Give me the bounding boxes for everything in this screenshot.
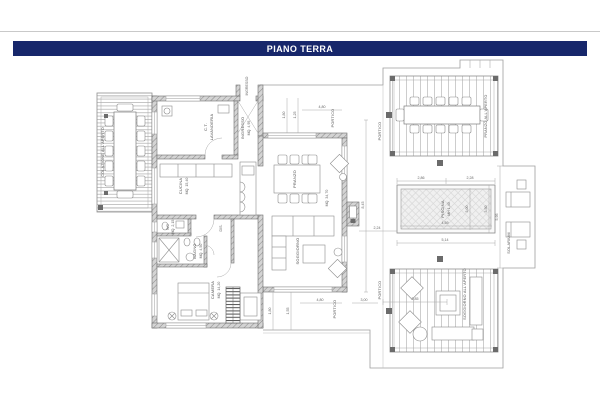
- label-pranzo-aperto: PRANZO ALL'APERTO: [484, 94, 488, 137]
- label-piscina-depth: MH 1,40: [447, 202, 451, 216]
- label-soggiorno: SOGGIORNO: [295, 238, 300, 265]
- label-wc: WC: [166, 224, 170, 230]
- dim-480-bottom: 4,80: [317, 298, 324, 302]
- dim-350: 3,50: [484, 206, 488, 213]
- dim-228: 2,28: [467, 176, 474, 180]
- label-portico-bottom-outer: PORTICO: [378, 281, 382, 300]
- label-ct: C.T.: [203, 123, 208, 131]
- pergola-pranzo: PRANZO ALL'APERTO: [386, 76, 498, 156]
- label-ingresso-mq: MQ. 4,95: [247, 121, 251, 136]
- label-piscina: PISCINA: [440, 200, 445, 218]
- label-portico-top-outer: PORTICO: [378, 122, 382, 141]
- label-sala-mq: MQ. 34,70: [325, 190, 329, 207]
- dim-595: 5,95: [495, 214, 499, 221]
- label-bagno: BAGNO: [192, 243, 197, 258]
- dim-300-pool: 3,00: [465, 206, 469, 213]
- dim-125-top: 1,25: [293, 112, 297, 119]
- label-dis: DIS.: [219, 225, 223, 232]
- drawing-sheet: PIANO TERRA: [0, 0, 600, 400]
- floor-plan: COLAZIONE ALL'APERTO: [0, 0, 600, 400]
- label-camera-mq: MQ. 14,20: [217, 282, 221, 299]
- label-cucina-mq: MQ. 15,40: [185, 178, 189, 195]
- dim-514: 5,14: [442, 238, 449, 242]
- label-portico-top-inner: PORTICO: [331, 109, 335, 128]
- label-solarium: SOLARIUM: [507, 232, 511, 253]
- dim-180-top: 1,80: [282, 112, 286, 119]
- fireplace: [347, 202, 359, 226]
- outdoor-table: [114, 112, 136, 190]
- dim-845: 8,45: [361, 202, 365, 209]
- label-pranzo: PRANZO: [292, 170, 297, 188]
- outdoor-dining-table: [404, 106, 480, 124]
- label-soggiorno-aperto: SOGGIORNO ALL'APERTO: [463, 268, 467, 320]
- solarium: SOLARIUM: [506, 180, 530, 254]
- label-camera: CAMERA: [210, 281, 215, 299]
- living-furniture: [272, 216, 347, 278]
- dim-480-top: 4,80: [319, 105, 326, 109]
- label-ingresso-door: INGRESSO: [245, 76, 249, 95]
- dim-285-pergola: 2,85: [412, 297, 419, 301]
- label-lavanderia: LAVANDERIA: [209, 113, 214, 140]
- label-portico-bottom-strip: PORTICO: [333, 300, 337, 319]
- kitchen-fixtures: [160, 162, 256, 215]
- pergola-soggiorno: SOGGIORNO ALL'APERTO: [386, 268, 498, 352]
- staircase: [226, 287, 240, 323]
- dim-180-bottom: 1,80: [268, 308, 272, 315]
- dim-459: 4,59: [442, 221, 449, 225]
- dim-300-bottom: 3,00: [361, 298, 368, 302]
- label-bagno-mq: MQ. 4,50: [199, 244, 203, 259]
- pergola-colazione: COLAZIONE ALL'APERTO: [97, 93, 152, 212]
- label-ingresso: INGRESSO: [240, 117, 245, 140]
- dim-286: 2,86: [418, 176, 425, 180]
- label-cucina: CUCINA: [178, 178, 183, 195]
- label-wc-mq: MQ. 2,15: [171, 220, 175, 235]
- label-colazione: COLAZIONE ALL'APERTO: [101, 127, 105, 177]
- ct-fixtures: [162, 105, 229, 116]
- dim-155-bottom: 1,55: [286, 308, 290, 315]
- dining-furniture: [274, 154, 349, 203]
- pool: PISCINA MH 1,40: [397, 160, 495, 262]
- dim-224: 2,24: [374, 226, 381, 230]
